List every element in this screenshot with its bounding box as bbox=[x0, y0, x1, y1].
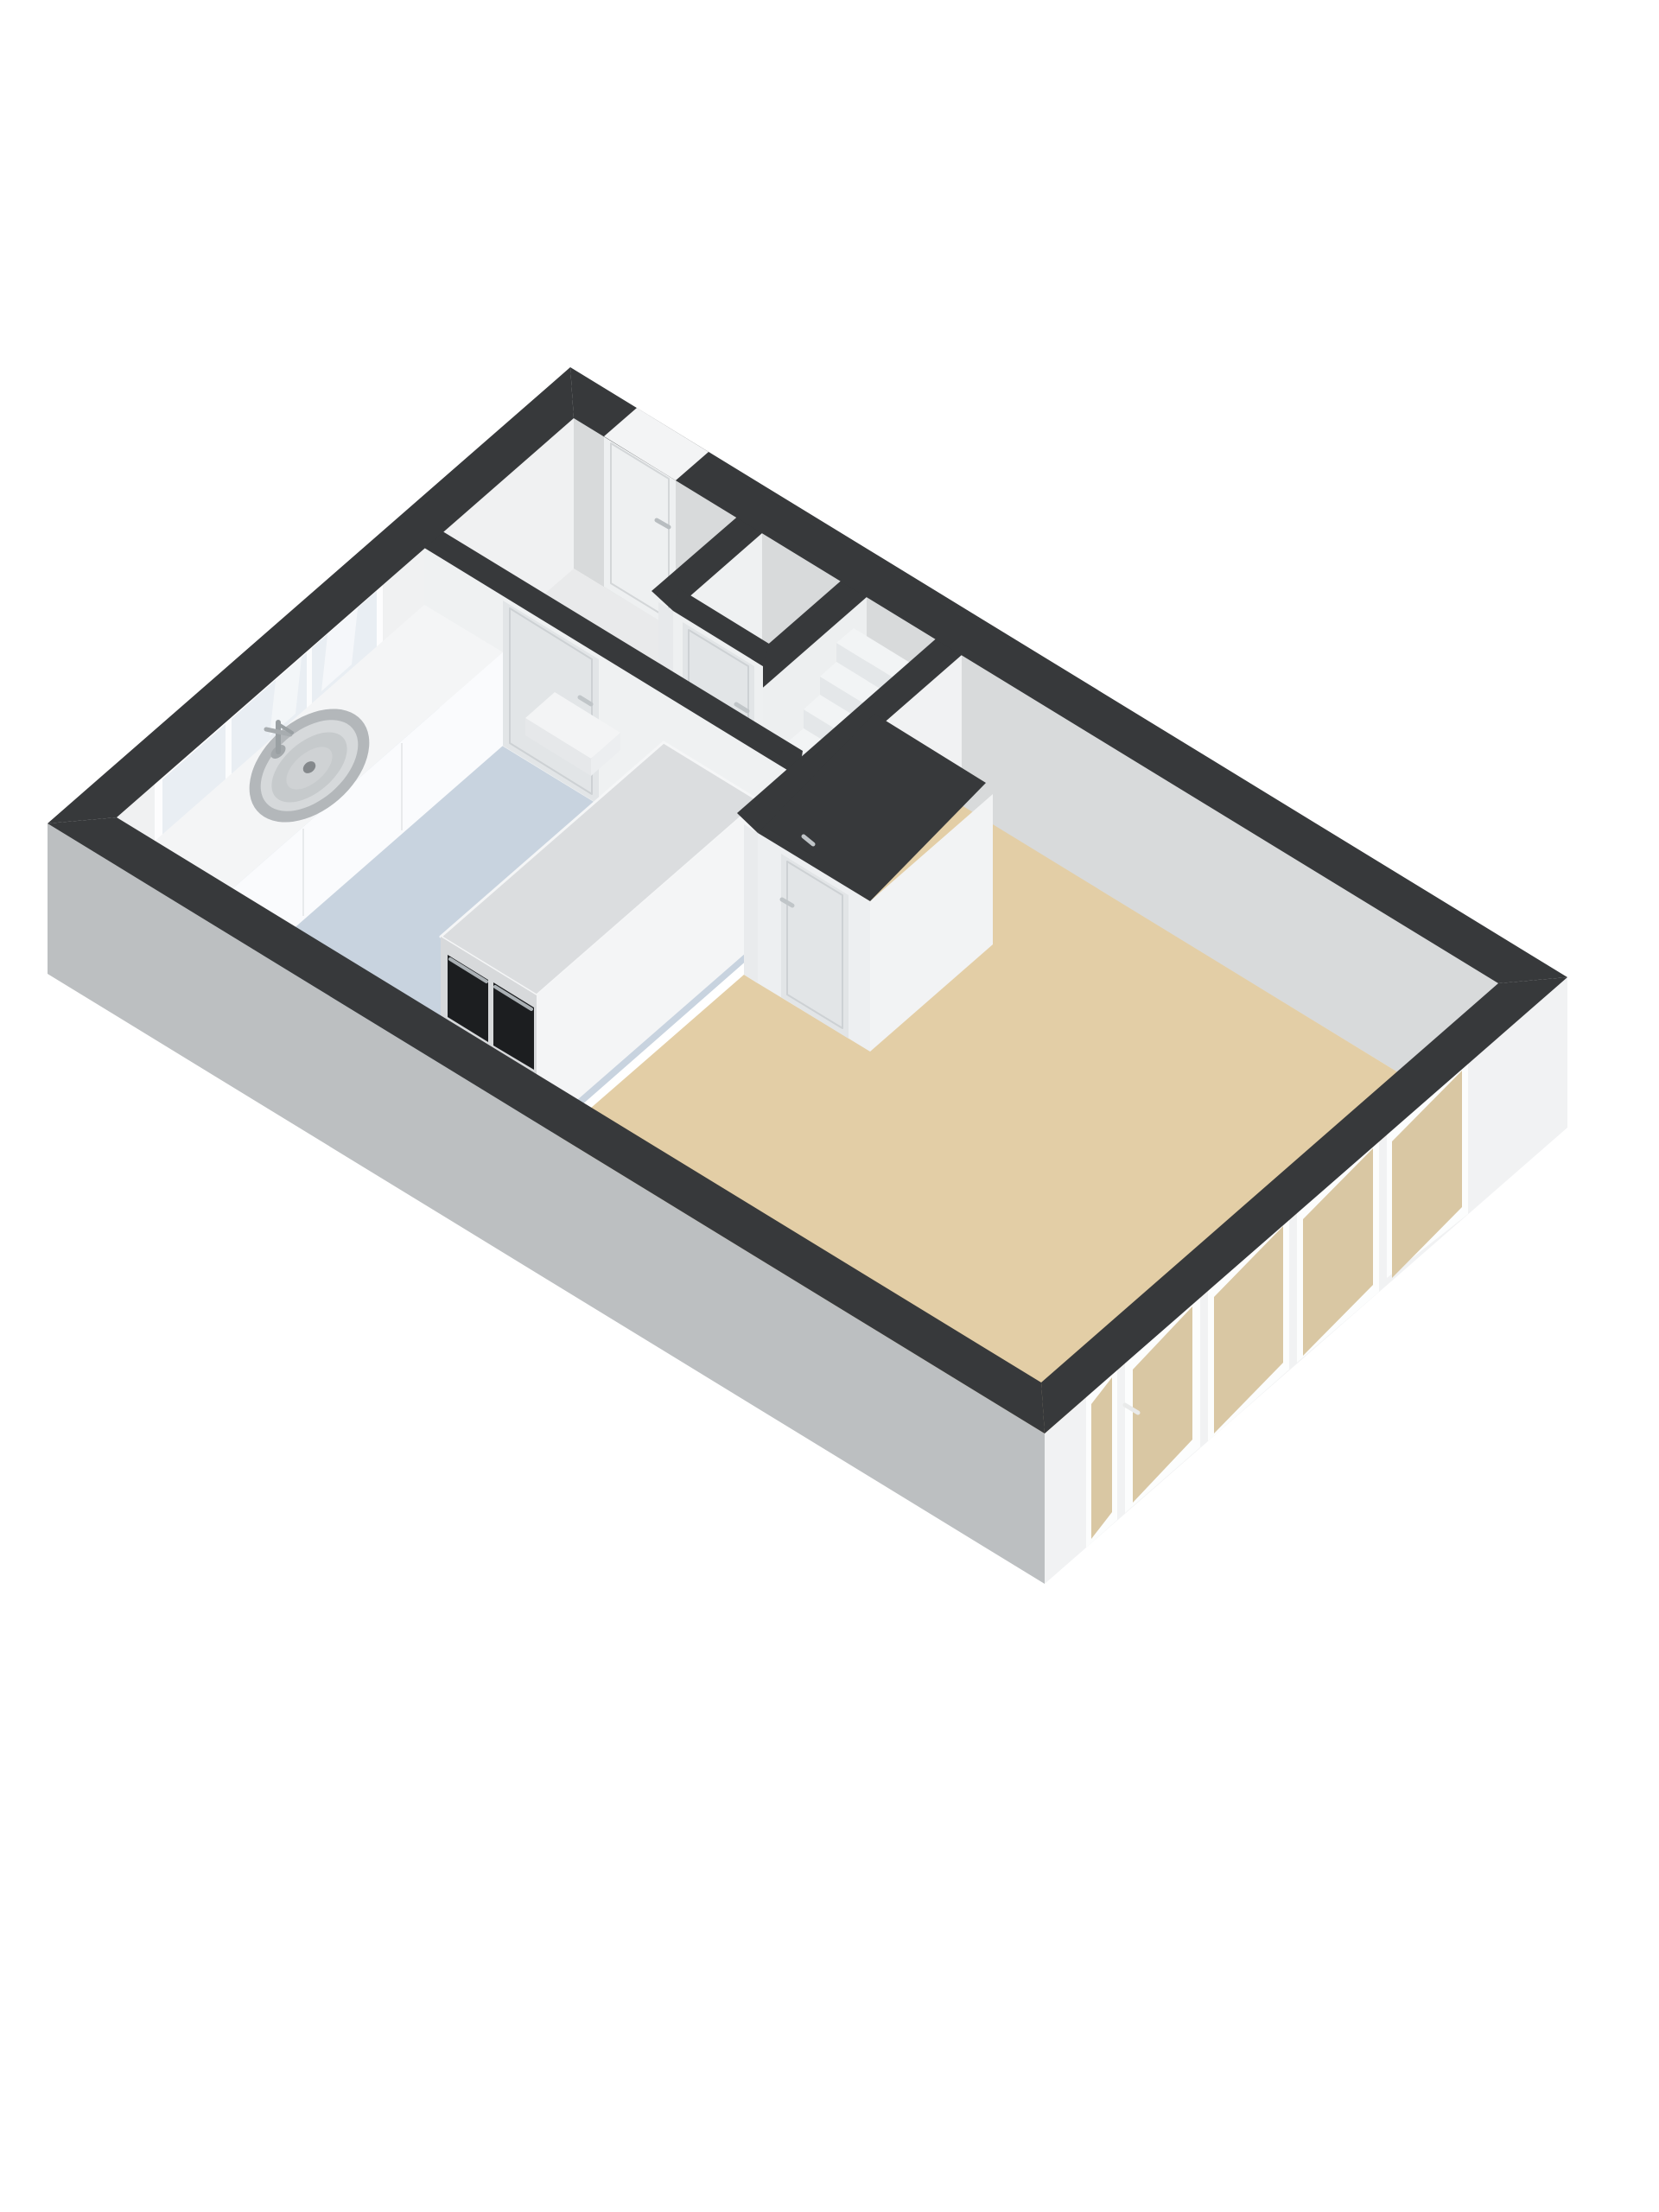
floor-plan-render bbox=[0, 0, 1659, 2212]
floor-plan-svg bbox=[0, 0, 1659, 2212]
facade-fixed-pane-glass bbox=[1091, 1377, 1112, 1539]
hall-living-wall-end bbox=[744, 824, 758, 983]
